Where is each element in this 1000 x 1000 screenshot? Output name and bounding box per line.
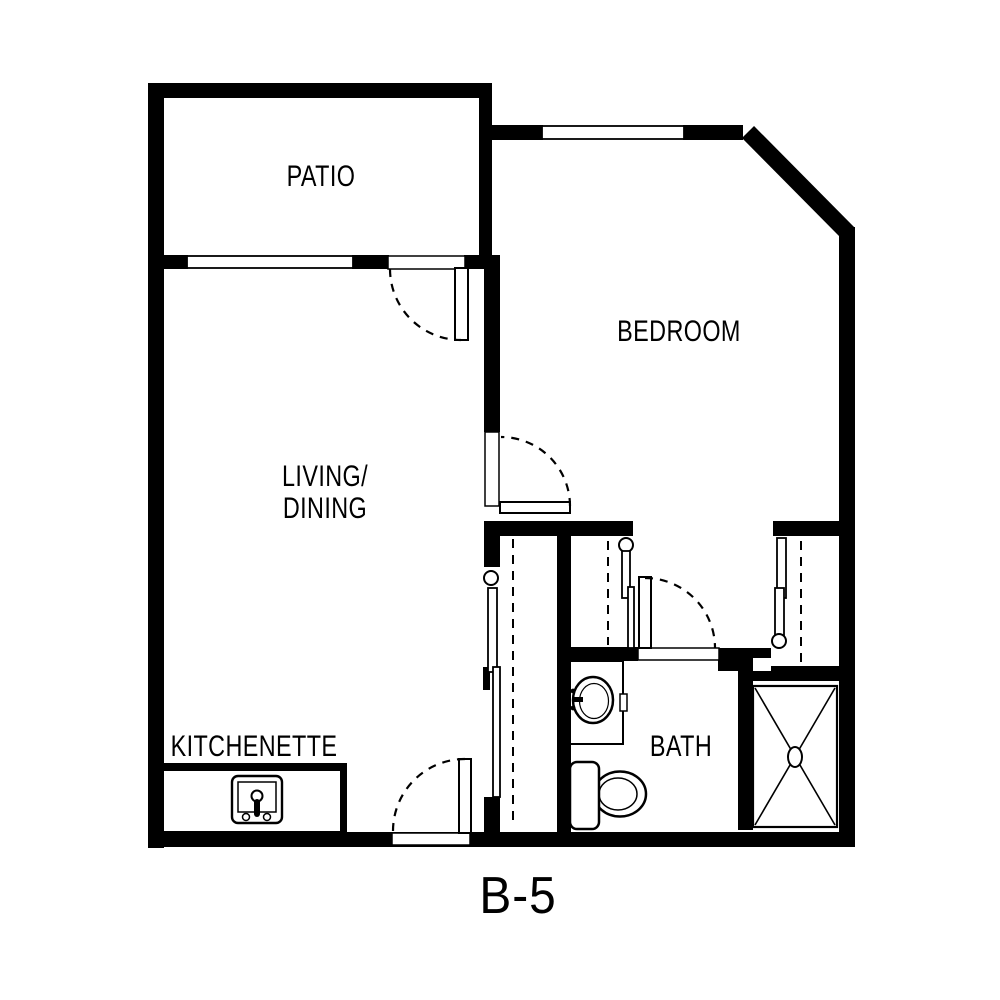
kitchen-sink [232, 776, 282, 823]
room-label-living-dining: LIVING/ DINING [282, 461, 368, 525]
left-wall [148, 83, 164, 848]
floor-plan-drawing [0, 0, 1000, 1000]
counter-right-edge [340, 764, 346, 832]
faucet-spout [254, 799, 260, 817]
patio-door-opening [388, 256, 465, 269]
bath-door-leaf [639, 577, 651, 648]
vanity-side-bump [620, 694, 627, 711]
patio-door-swing-arc [390, 269, 461, 340]
lavatory-knob-top [571, 689, 576, 694]
bottom-wall [148, 832, 855, 847]
living-bedroom-wall-upper [484, 255, 500, 432]
patio-living-wall-a [148, 255, 188, 269]
entry-door-swing-arc [393, 759, 465, 831]
floor-plan: PATIO BEDROOM LIVING/ DINING KITCHENETTE… [0, 0, 1000, 1000]
shower-drain [788, 747, 802, 767]
entry-door [393, 759, 471, 833]
wall-notch [753, 658, 771, 671]
bedroom-diagonal-wall [748, 132, 848, 233]
patio-top-wall [148, 83, 492, 98]
patio-door-leaf [455, 268, 468, 340]
hall-closet-left [608, 538, 634, 648]
bedroom-door-opening [485, 432, 499, 506]
toilet-tank [570, 762, 599, 829]
entry-door-leaf [459, 759, 471, 833]
bedroom-top-wall-left [491, 125, 543, 140]
bath-door [639, 577, 715, 648]
bedroom-bottom-wall-right [773, 521, 843, 536]
counter-top-edge [163, 764, 346, 771]
bath-top-wall [557, 647, 638, 661]
bedroom-bottom-wall-left [487, 521, 633, 536]
room-label-patio: PATIO [287, 161, 356, 193]
faucet-handle-right [264, 814, 271, 821]
patio-right-wall [479, 83, 492, 267]
bifold-panel [493, 667, 500, 797]
shower-left-wall [738, 666, 753, 830]
room-label-bath: BATH [650, 731, 712, 763]
entry-door-threshold [392, 833, 470, 845]
lavatory-bowl-inner [580, 684, 609, 719]
lavatory-knob-bottom [571, 706, 576, 711]
bifold-pivot [619, 538, 633, 552]
bifold-pivot [484, 571, 498, 585]
bifold-pivot [772, 634, 786, 648]
room-label-living-line1: LIVING/ [282, 461, 368, 493]
patio-living-wall-b [352, 255, 389, 269]
bedroom-window [542, 126, 684, 139]
bifold-panel [628, 587, 634, 648]
hall-closet-right [772, 538, 801, 664]
toilet-bowl-inner [599, 778, 637, 810]
bath-door-swing-arc [645, 578, 715, 648]
shower [753, 686, 837, 827]
room-label-kitchenette: KITCHENETTE [171, 731, 338, 763]
room-label-bedroom: BEDROOM [617, 316, 741, 348]
right-wall [839, 227, 855, 847]
bifold-panel [488, 588, 497, 672]
toilet [570, 762, 646, 829]
faucet-handle-left [243, 814, 250, 821]
bedroom-door-swing-arc [501, 437, 570, 506]
bedroom-top-wall-right [683, 125, 743, 140]
kitchenette-counter [163, 764, 346, 832]
vanity-sink [570, 661, 627, 744]
bedroom-door-leaf [500, 502, 570, 513]
patio-door [390, 268, 468, 340]
bedroom-door [500, 437, 570, 513]
patio-window [187, 256, 353, 268]
room-label-living-line2: DINING [282, 493, 368, 525]
plan-title: B-5 [479, 866, 556, 926]
windows [187, 126, 684, 268]
lavatory-faucet [572, 697, 583, 702]
living-bedroom-wall-lower-jamb [484, 797, 500, 833]
bath-door-threshold [638, 648, 719, 660]
